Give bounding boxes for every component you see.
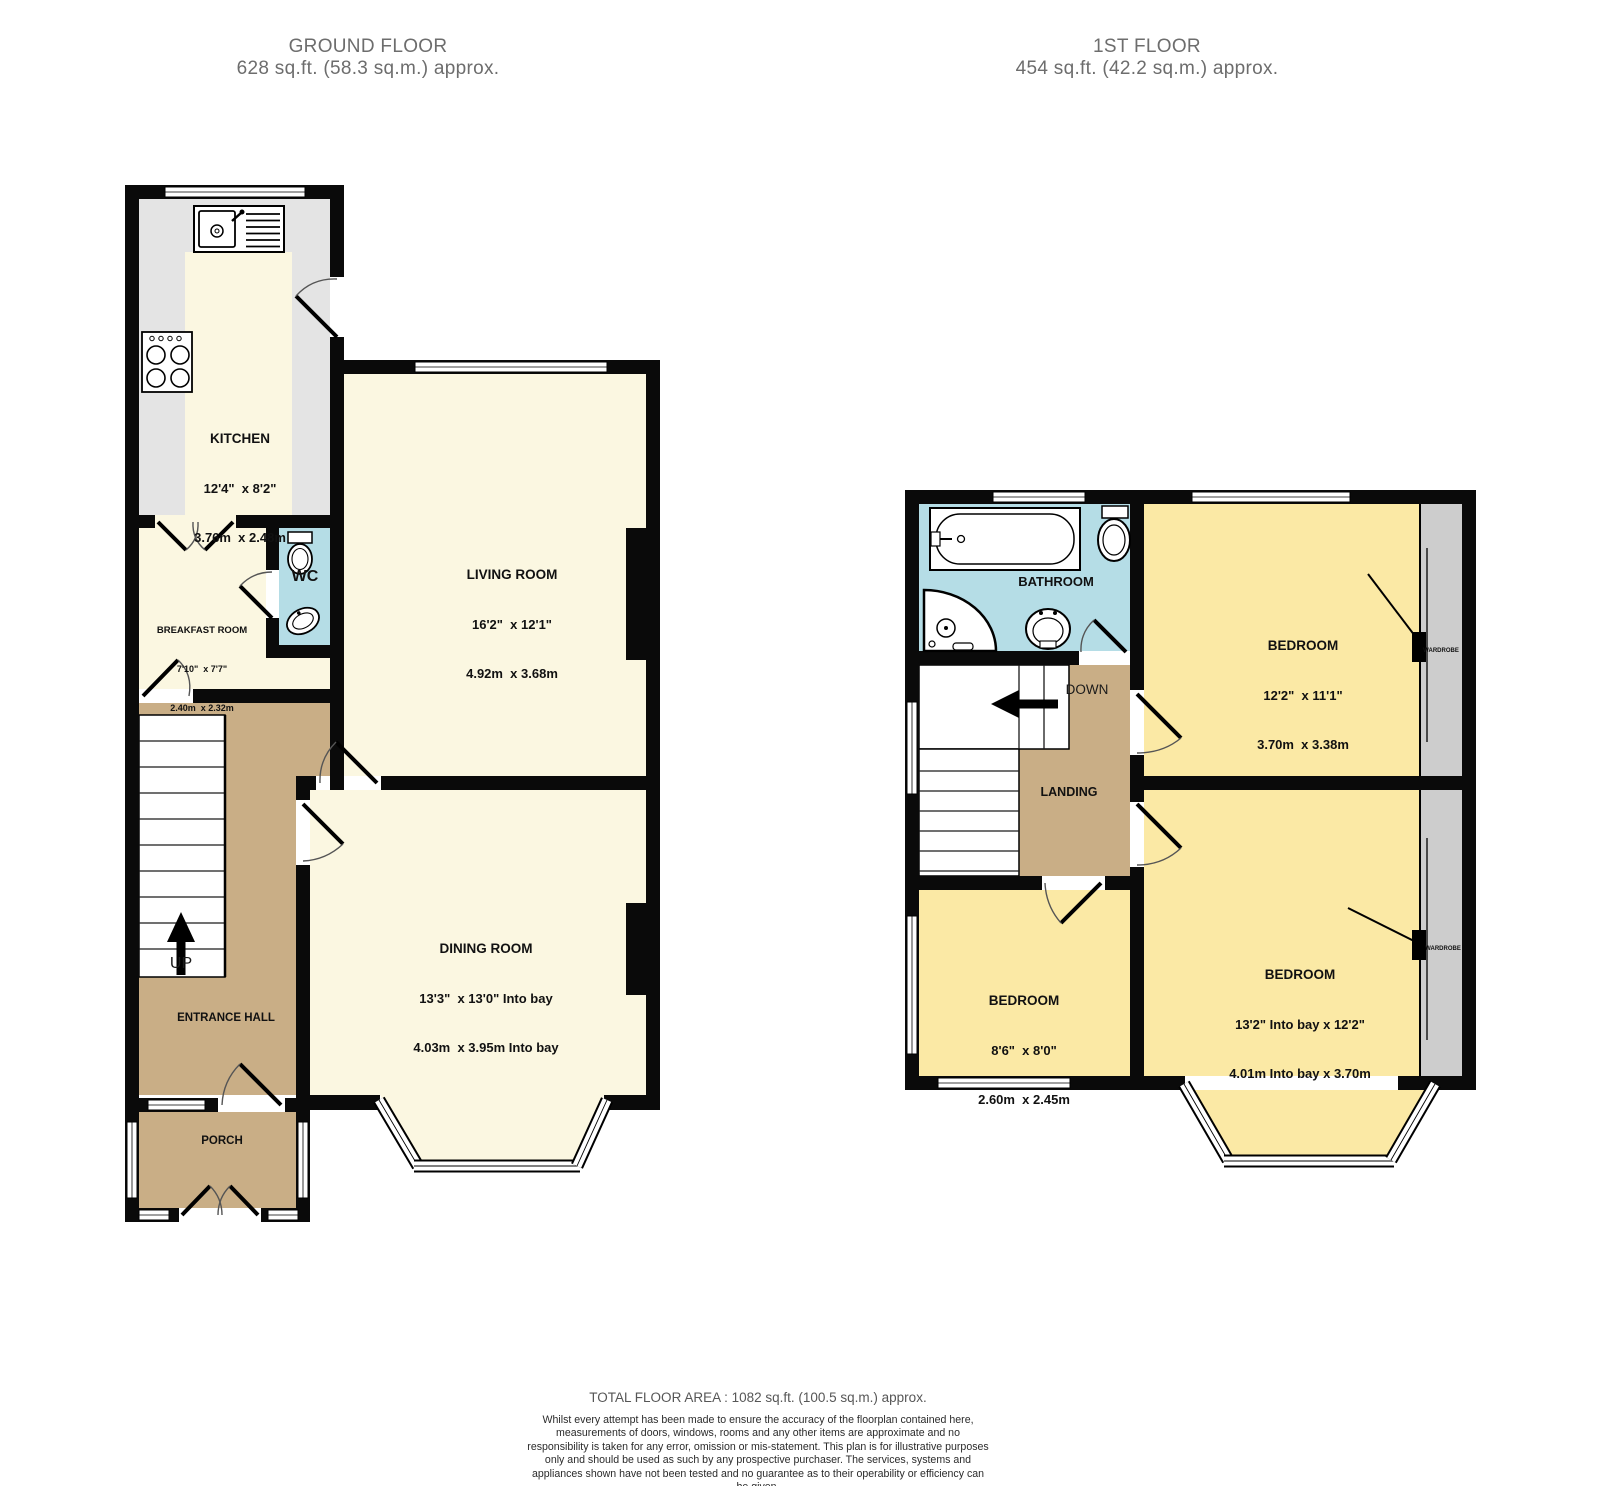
disclaimer-text: Whilst every attempt has been made to en… — [527, 1414, 989, 1486]
wall — [905, 651, 1079, 665]
bedroom-small-name: BEDROOM — [978, 993, 1070, 1010]
bedroom-small-imperial: 8'6" x 8'0" — [978, 1043, 1070, 1060]
breakfast-room-area2 — [266, 658, 330, 689]
wall — [296, 865, 310, 1095]
wall — [646, 360, 660, 790]
kitchen-sink-icon — [194, 206, 284, 252]
wardrobe-rear-area — [1420, 504, 1462, 776]
stove-icon — [142, 332, 192, 392]
stairs-up-label: UP — [170, 955, 192, 973]
breakfast-room-name: BREAKFAST ROOM — [157, 624, 247, 637]
staircase-down-lower — [919, 749, 1019, 876]
living-room-imperial: 16'2" x 12'1" — [466, 617, 558, 634]
living-room-metric: 4.92m x 3.68m — [466, 666, 558, 683]
ground-floor-area: 628 sq.ft. (58.3 sq.m.) approx. — [237, 58, 500, 80]
window — [907, 916, 917, 1054]
dining-room-metric: 4.03m x 3.95m Into bay — [413, 1040, 558, 1057]
wall — [1130, 776, 1476, 790]
wall — [1105, 876, 1144, 890]
wardrobe-rear-label: WARDROBE — [1423, 648, 1459, 654]
landing-area2 — [1069, 665, 1130, 749]
dining-room-imperial: 13'3" x 13'0" Into bay — [413, 991, 558, 1008]
bedroom-small-label: BEDROOM 8'6" x 8'0" 2.60m x 2.45m — [978, 960, 1070, 1125]
total-floor-area: TOTAL FLOOR AREA : 1082 sq.ft. (100.5 sq… — [527, 1390, 989, 1405]
wall — [1130, 490, 1144, 690]
floorplan-drawing — [0, 0, 1600, 1486]
wall — [905, 876, 1042, 890]
window — [268, 1210, 298, 1220]
bathroom-label: BATHROOM — [1018, 574, 1094, 589]
window — [298, 1122, 308, 1198]
window — [993, 492, 1085, 502]
bedroom-front-metric: 4.01m Into bay x 3.70m — [1229, 1066, 1371, 1083]
bedroom-rear-metric: 3.70m x 3.38m — [1257, 737, 1349, 754]
bedroom-front-imperial: 13'2" Into bay x 12'2" — [1229, 1017, 1371, 1034]
wall — [381, 776, 660, 790]
window — [148, 1100, 205, 1110]
footer: TOTAL FLOOR AREA : 1082 sq.ft. (100.5 sq… — [527, 1390, 989, 1486]
chimney-breast — [626, 903, 646, 995]
bedroom-front-name: BEDROOM — [1229, 967, 1371, 984]
entrance-hall-label: ENTRANCE HALL — [177, 1012, 275, 1024]
landing-label: LANDING — [1041, 785, 1098, 799]
wall — [296, 776, 316, 790]
stairs-down-label: DOWN — [1066, 682, 1109, 697]
window — [1192, 492, 1350, 502]
kitchen-name: KITCHEN — [194, 431, 286, 448]
ground-stairs — [139, 715, 225, 977]
wardrobe-front-label: WARDROBE — [1425, 946, 1461, 952]
wall — [330, 337, 344, 515]
window — [165, 187, 305, 197]
breakfast-room-label: BREAKFAST ROOM 7'10" x 7'7" 2.40m x 2.32… — [157, 598, 247, 728]
breakfast-room-metric: 2.40m x 2.32m — [157, 702, 247, 715]
ground-floor-title: GROUND FLOOR 628 sq.ft. (58.3 sq.m.) app… — [237, 36, 500, 80]
porch-label: PORCH — [201, 1135, 243, 1147]
kitchen-imperial: 12'4" x 8'2" — [194, 481, 286, 498]
bedroom-rear-name: BEDROOM — [1257, 638, 1349, 655]
wardrobe-handle — [1412, 930, 1426, 960]
wall — [296, 790, 310, 800]
first-floor-title: 1ST FLOOR 454 sq.ft. (42.2 sq.m.) approx… — [1016, 36, 1279, 80]
kitchen-metric: 3.76m x 2.48m — [194, 530, 286, 547]
bedroom-rear-imperial: 12'2" x 11'1" — [1257, 688, 1349, 705]
dining-room-label: DINING ROOM 13'3" x 13'0" Into bay 4.03m… — [413, 908, 558, 1073]
kitchen-label: KITCHEN 12'4" x 8'2" 3.76m x 2.48m — [194, 398, 286, 563]
ground-floor-name: GROUND FLOOR — [237, 36, 500, 58]
chimney-breast — [626, 528, 646, 660]
bedroom-small-metric: 2.60m x 2.45m — [978, 1092, 1070, 1109]
toilet-icon — [1098, 506, 1130, 561]
wall — [330, 185, 344, 277]
wall — [646, 790, 660, 1095]
living-room-name: LIVING ROOM — [466, 567, 558, 584]
first-floor-area: 454 sq.ft. (42.2 sq.m.) approx. — [1016, 58, 1279, 80]
window — [127, 1122, 137, 1198]
basin-icon — [1026, 609, 1070, 649]
window — [415, 362, 607, 372]
wardrobe-front-area — [1420, 790, 1462, 1076]
wall — [125, 515, 155, 528]
breakfast-room-imperial: 7'10" x 7'7" — [157, 663, 247, 676]
porch-area — [139, 1112, 296, 1208]
wc-label: WC — [292, 568, 319, 586]
bedroom-rear-label: BEDROOM 12'2" x 11'1" 3.70m x 3.38m — [1257, 605, 1349, 770]
first-floor-name: 1ST FLOOR — [1016, 36, 1279, 58]
wall — [125, 185, 139, 1222]
wall — [1130, 867, 1144, 1090]
bedroom-front-label: BEDROOM 13'2" Into bay x 12'2" 4.01m Int… — [1229, 934, 1371, 1099]
window — [907, 702, 917, 794]
landing-area — [1019, 749, 1130, 876]
living-room-label: LIVING ROOM 16'2" x 12'1" 4.92m x 3.68m — [466, 534, 558, 699]
dining-room-name: DINING ROOM — [413, 941, 558, 958]
window — [139, 1210, 169, 1220]
floorplan-canvas: GROUND FLOOR 628 sq.ft. (58.3 sq.m.) app… — [0, 0, 1600, 1486]
bath-icon — [930, 508, 1080, 570]
